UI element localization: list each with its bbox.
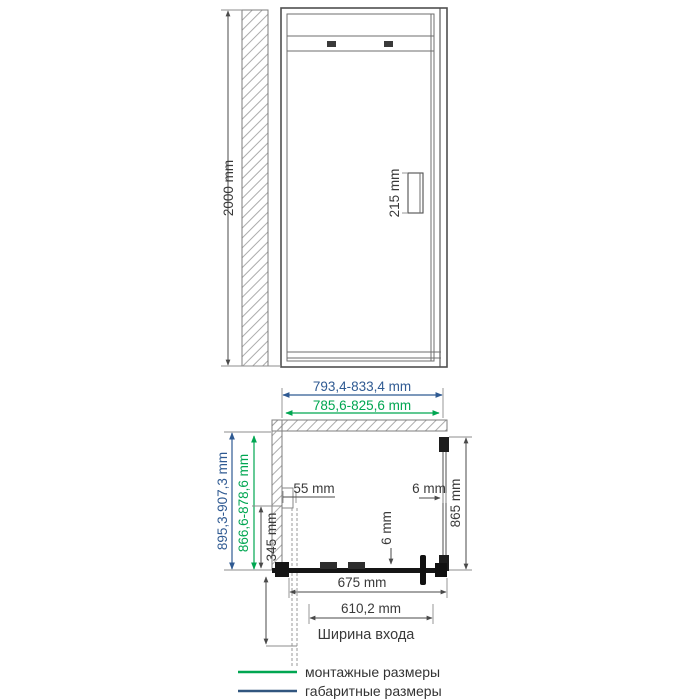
door-fitting-right — [348, 562, 365, 569]
top-bar-fitting-left — [327, 41, 336, 47]
mounting-depth-label: 866,6-878,6 mm — [236, 454, 251, 552]
side-glass-length-label: 865 mm — [448, 479, 463, 528]
overall-width-label: 793,4-833,4 mm — [313, 379, 411, 394]
shower-enclosure-dimension-drawing: 215 mm 2000 mm 793,4-833,4 mm 785,6-825,… — [0, 0, 700, 700]
door-handle — [408, 173, 423, 213]
height-label: 2000 mm — [221, 160, 236, 216]
wall-profile-outline — [282, 488, 293, 508]
side-offset-label: 345 mm — [264, 513, 279, 562]
wall-profile-width-label: 55 mm — [293, 481, 334, 496]
entrance-width-label: 610,2 mm — [341, 601, 401, 616]
side-glass-top-profile — [439, 437, 449, 452]
top-view: 793,4-833,4 mm 785,6-825,6 mm 865 mm 6 m… — [215, 379, 472, 668]
door-fitting-left — [320, 562, 337, 569]
front-wall-hatch — [242, 10, 268, 366]
door-front-width-label: 675 mm — [338, 575, 387, 590]
top-bar-fitting-right — [384, 41, 393, 47]
mounting-width-label: 785,6-825,6 mm — [313, 398, 411, 413]
legend: монтажные размеры габаритные размеры — [238, 664, 442, 699]
back-wall-hatch — [272, 420, 447, 431]
door-hinge-profile — [275, 562, 289, 577]
drawing-svg: 215 mm 2000 mm 793,4-833,4 mm 785,6-825,… — [0, 0, 700, 700]
door-glass-thickness-label: 6 mm — [379, 511, 394, 545]
side-glass-thickness-label: 6 mm — [412, 481, 446, 496]
door-handle-plan — [420, 555, 426, 585]
legend-label-mounting: монтажные размеры — [305, 664, 440, 680]
corner-connector — [435, 563, 447, 577]
entrance-caption: Ширина входа — [318, 627, 416, 643]
handle-height-label: 215 mm — [387, 169, 402, 218]
overall-depth-label: 895,3-907,3 mm — [215, 452, 230, 550]
legend-label-overall: габаритные размеры — [305, 683, 442, 699]
front-view: 215 mm 2000 mm — [221, 8, 447, 367]
